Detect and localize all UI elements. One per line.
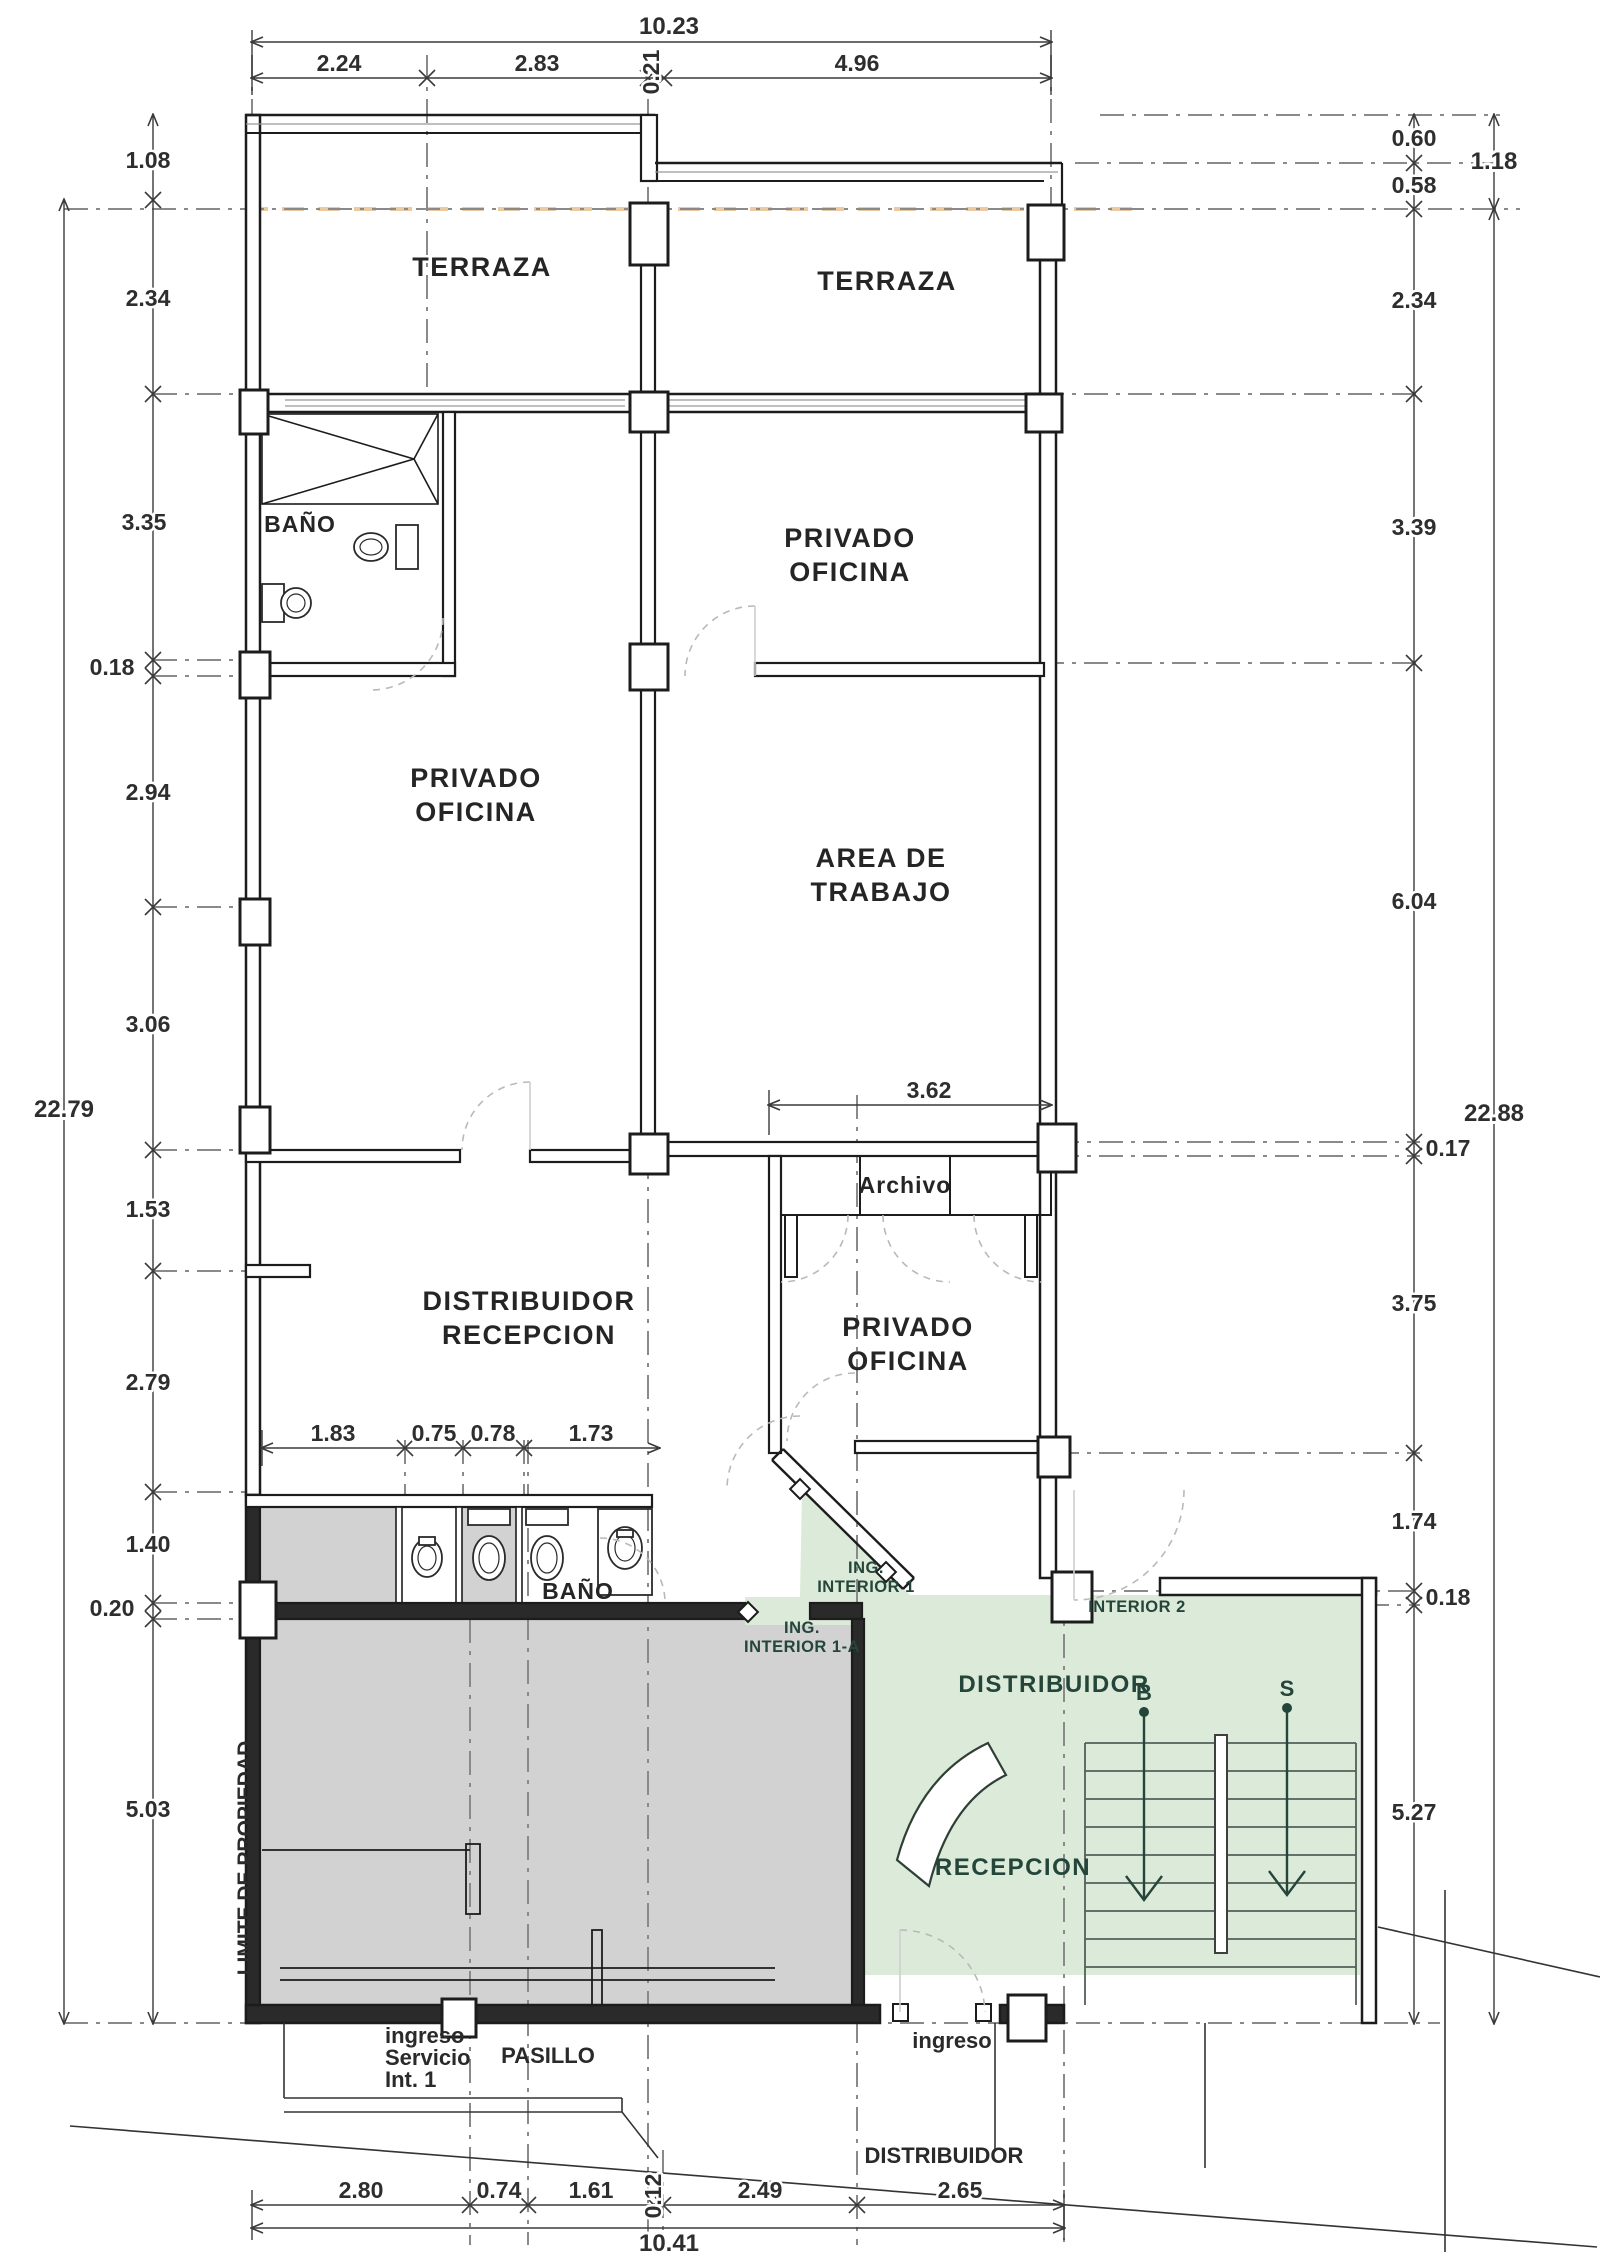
floor-plan-page: 10.23 2.24 2.83 0.21 4.96 1.08 2.34 3.35…: [0, 0, 1600, 2252]
sink-niche: [412, 1537, 442, 1577]
label-privado-left-l1: PRIVADO: [410, 763, 542, 793]
dim-bottom-total: 10.41: [639, 2230, 699, 2252]
dim-right-4: 3.39: [1392, 514, 1437, 540]
top-roof-band-left: [246, 115, 655, 133]
door-bano-upper: [371, 618, 443, 690]
bano-upper-right-wall: [443, 412, 455, 676]
label-ing-interior1-l1: ING.: [848, 1559, 884, 1577]
dim-right-total: 22.88: [1464, 1100, 1524, 1127]
central-divider-wall: [641, 412, 655, 1142]
gray-room-right-wall: [852, 1619, 864, 2005]
dim-left-7: 1.53: [126, 1196, 171, 1222]
label-terraza-left: TERRAZA: [412, 252, 552, 282]
dim-left-10: 0.20: [90, 1595, 135, 1621]
label-privado-upper-l2: OFICINA: [789, 557, 911, 587]
dim-bottom-6: 2.65: [938, 2177, 983, 2203]
stair-handrail: [1215, 1735, 1227, 1953]
bath-top-wall: [246, 1495, 652, 1507]
label-stair-b: B: [1136, 1680, 1152, 1705]
label-distribuidor-recepcion-l2: RECEPCION: [442, 1320, 616, 1350]
label-ing-interior1-l2: INTERIOR 1: [817, 1578, 915, 1596]
dim-top-3: 0.21: [638, 49, 664, 94]
toilet-bano-lower: [526, 1509, 568, 1580]
right-exterior-wall-upper: [1040, 258, 1056, 394]
label-bano-lower: BAÑO: [542, 1577, 614, 1604]
dim-top-total: 10.23: [639, 13, 699, 40]
label-privado-lower-l1: PRIVADO: [842, 1312, 974, 1342]
privado-left-bottom-wall-a: [246, 1150, 460, 1162]
top-roof-band-right: [655, 163, 1062, 205]
privado-top-bottom-wall: [755, 663, 1044, 676]
dim-left-5: 2.94: [126, 779, 171, 805]
label-area-trabajo-l2: TRABAJO: [810, 877, 951, 907]
privado-lower-left-wall: [769, 1156, 781, 1453]
gray-service-zone: [262, 1495, 862, 2005]
street-slope-line: [70, 2126, 1597, 2247]
archivo-top-wall: [655, 1142, 1051, 1156]
dim-bath-3: 0.78: [471, 1420, 516, 1446]
dim-bottom-3: 1.61: [569, 2177, 614, 2203]
dim-left-6: 3.06: [126, 1011, 171, 1037]
dim-top-1: 2.24: [317, 50, 362, 76]
top-roof-connector: [641, 115, 657, 181]
toilet-upper: [354, 525, 418, 569]
dim-top-4: 4.96: [835, 50, 880, 76]
dim-bottom-4: 0.12: [640, 2174, 666, 2219]
left-exterior-wall: [246, 115, 260, 1495]
dim-left-total: 22.79: [34, 1096, 94, 1123]
door-archivo-mid: [883, 1215, 950, 1282]
dim-left-1: 1.08: [126, 147, 171, 173]
dim-bottom-1: 2.80: [339, 2177, 384, 2203]
label-interior2: INTERIOR 2: [1088, 1598, 1186, 1616]
bath-zone-bottom-wall-a: [246, 1603, 745, 1619]
stair-block-top-wall: [1160, 1578, 1376, 1595]
dim-right-3: 2.34: [1392, 287, 1437, 313]
label-limite-propiedad: LIMITE DE PROPIEDAD: [234, 1741, 257, 1976]
bano-upper-bottom-wall: [246, 663, 455, 676]
label-distribuidor-green: DISTRIBUIDOR: [958, 1671, 1149, 1698]
dim-left-9: 1.40: [126, 1531, 171, 1557]
label-distribuidor-bottom: DISTRIBUIDOR: [865, 2143, 1024, 2168]
dim-bath-1: 1.83: [311, 1420, 356, 1446]
label-stair-s: S: [1280, 1676, 1295, 1701]
dim-right-8: 1.74: [1392, 1508, 1437, 1534]
label-area-trabajo-l1: AREA DE: [815, 843, 946, 873]
privado-left-bottom-wall-b: [530, 1150, 641, 1162]
label-ing-interior1a-l1: ING.: [784, 1619, 820, 1637]
dim-top-2: 2.83: [515, 50, 560, 76]
privado-lower-bottom-wall: [855, 1441, 1051, 1453]
label-ingreso-main: ingreso: [912, 2028, 991, 2053]
label-privado-left-l2: OFICINA: [415, 797, 537, 827]
floor-plan-drawing: 10.23 2.24 2.83 0.21 4.96 1.08 2.34 3.35…: [0, 0, 1600, 2252]
label-distribuidor-recepcion-l1: DISTRIBUIDOR: [423, 1286, 636, 1316]
bano-upper-closet: [262, 414, 438, 504]
dim-left-11: 5.03: [126, 1796, 171, 1822]
stair-block-right-wall: [1362, 1578, 1376, 2023]
dim-bath-2: 0.75: [412, 1420, 457, 1446]
dim-right-2: 0.58: [1392, 172, 1437, 198]
label-ingreso-servicio-l3: Int. 1: [385, 2067, 436, 2092]
dim-bottom-2: 0.74: [477, 2177, 522, 2203]
dim-right-upper-total: 1.18: [1471, 148, 1518, 175]
dim-left-2: 2.34: [126, 285, 171, 311]
label-terraza-right: TERRAZA: [817, 266, 957, 296]
dim-bottom-5: 2.49: [738, 2177, 783, 2203]
dim-right-10: 5.27: [1392, 1799, 1437, 1825]
dim-left-3: 3.35: [122, 509, 167, 535]
label-recepcion: RECEPCION: [935, 1854, 1091, 1881]
right-exterior-wall: [1040, 412, 1056, 1578]
door-privado-lower: [787, 1373, 855, 1441]
dim-right-6: 0.17: [1426, 1135, 1471, 1161]
dim-left-8: 2.79: [126, 1369, 171, 1395]
label-pasillo: PASILLO: [501, 2043, 595, 2068]
dim-right-1: 0.60: [1392, 125, 1437, 151]
sink-upper: [262, 584, 311, 622]
dim-archivo: 3.62: [907, 1077, 952, 1103]
label-ing-interior1a-l2: INTERIOR 1-A: [744, 1638, 860, 1656]
label-privado-upper-l1: PRIVADO: [784, 523, 916, 553]
door-privado-top: [685, 606, 755, 676]
dim-left-4: 0.18: [90, 654, 135, 680]
dim-right-9: 0.18: [1426, 1584, 1471, 1610]
dim-bath-4: 1.73: [569, 1420, 614, 1446]
dim-right-7: 3.75: [1392, 1290, 1437, 1316]
bottom-wall-left: [246, 2005, 880, 2023]
door-privado-left: [462, 1082, 530, 1150]
distribuidor-step-wall: [246, 1265, 310, 1277]
bath-zone-bottom-wall-b: [810, 1603, 862, 1619]
label-bano-upper: BAÑO: [264, 510, 336, 537]
dim-right-5: 6.04: [1392, 888, 1437, 914]
label-privado-lower-l2: OFICINA: [847, 1346, 969, 1376]
label-archivo: Archivo: [859, 1172, 952, 1198]
